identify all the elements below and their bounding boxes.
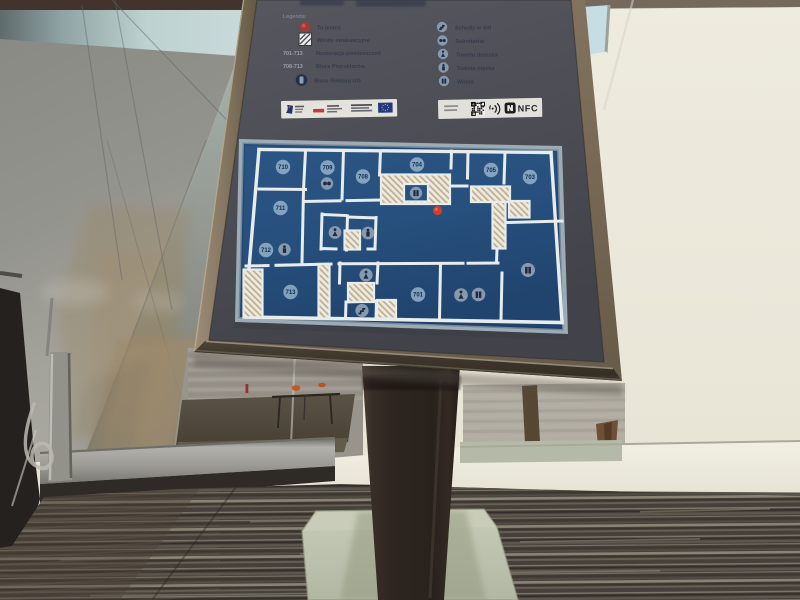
svg-text:713: 713: [285, 290, 296, 296]
svg-text:701: 701: [413, 293, 424, 299]
svg-text:Schody w dół: Schody w dół: [455, 26, 491, 32]
svg-text:Biuro Rektora UG: Biuro Rektora UG: [314, 79, 361, 85]
svg-text:Legenda:: Legenda:: [283, 14, 307, 20]
svg-text:Windy ewakuacyjne: Windy ewakuacyjne: [317, 38, 370, 44]
svg-text:Tu jesteś: Tu jesteś: [317, 26, 341, 32]
svg-text:Sekretariat: Sekretariat: [456, 39, 485, 45]
svg-text:Biura Prorektorów: Biura Prorektorów: [316, 64, 365, 70]
svg-text:710: 710: [278, 165, 289, 171]
svg-text:Toaleta damska: Toaleta damska: [456, 53, 498, 59]
svg-text:711: 711: [276, 206, 286, 212]
svg-text:Winda: Winda: [457, 80, 475, 86]
svg-text:703: 703: [525, 175, 536, 181]
svg-text:705: 705: [486, 168, 497, 174]
svg-text:Numeracja pomieszczeń: Numeracja pomieszczeń: [316, 51, 382, 57]
svg-text:Toaleta męska: Toaleta męska: [457, 66, 496, 72]
svg-text:709: 709: [322, 166, 333, 172]
svg-text:NFC: NFC: [518, 103, 539, 113]
svg-text:708: 708: [358, 175, 369, 181]
svg-text:704: 704: [412, 163, 423, 169]
svg-text:701-713: 701-713: [283, 51, 303, 57]
svg-text:708-713: 708-713: [283, 64, 303, 70]
svg-text:712: 712: [261, 248, 272, 254]
